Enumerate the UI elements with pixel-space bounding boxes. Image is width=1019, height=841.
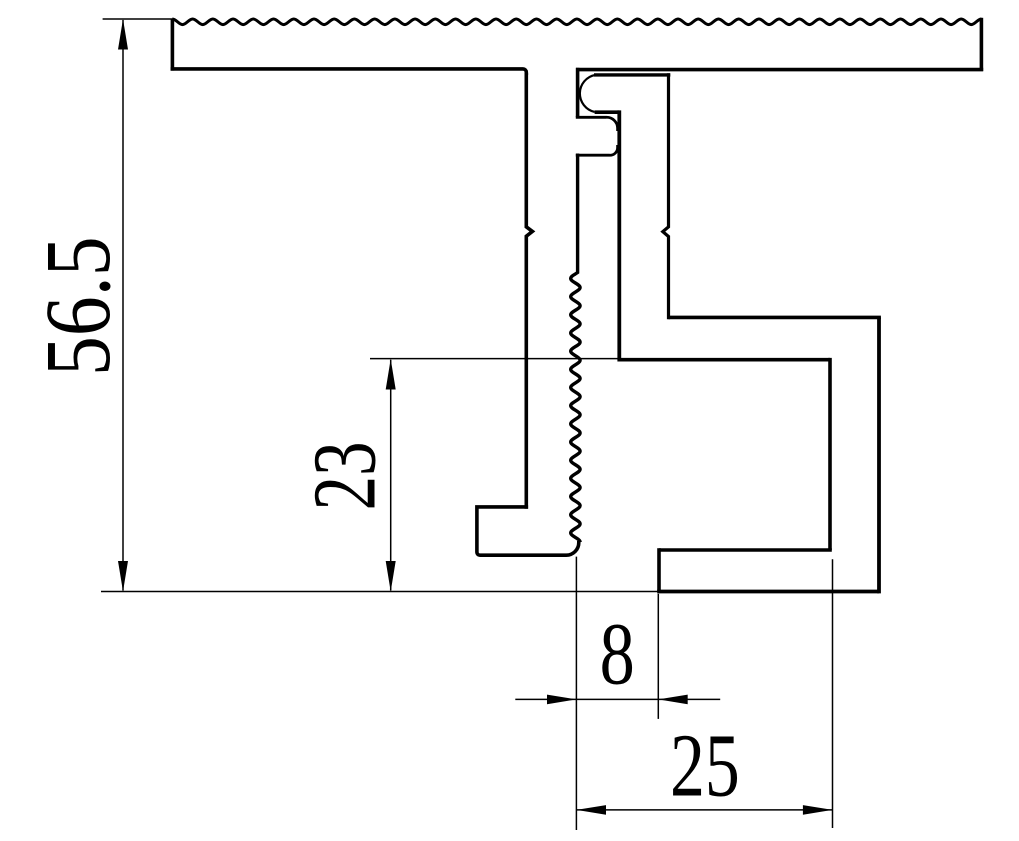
svg-text:23: 23 <box>296 441 395 510</box>
svg-text:56.5: 56.5 <box>26 236 129 376</box>
svg-text:25: 25 <box>670 716 740 816</box>
svg-text:8: 8 <box>600 605 635 704</box>
